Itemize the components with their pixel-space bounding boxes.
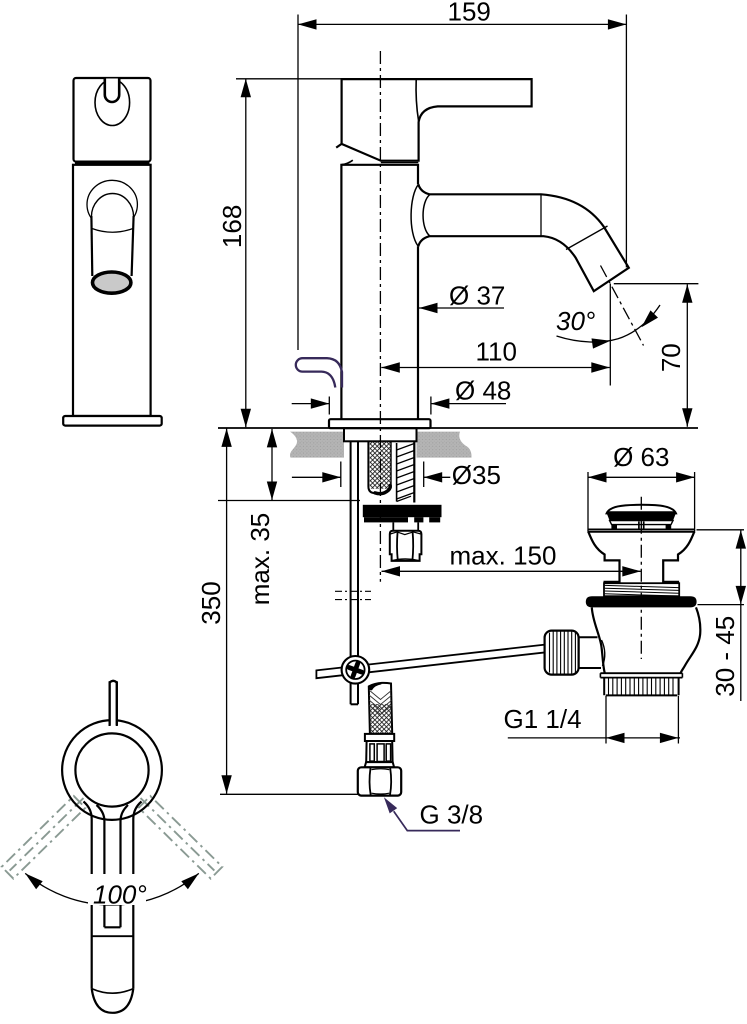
svg-text:Ø 63: Ø 63 [613,442,669,472]
svg-text:max. 35: max. 35 [245,513,275,606]
svg-text:30°: 30° [556,306,595,336]
svg-text:max. 150: max. 150 [450,541,557,571]
svg-text:70: 70 [656,343,686,372]
svg-text:168: 168 [217,205,247,248]
svg-text:350: 350 [196,581,226,624]
svg-text:Ø 37: Ø 37 [449,281,505,311]
svg-text:G1 1/4: G1 1/4 [504,704,582,734]
svg-text:110: 110 [476,336,517,366]
svg-text:159: 159 [448,0,491,26]
svg-text:30 - 45: 30 - 45 [710,616,740,697]
svg-text:G 3/8: G 3/8 [420,800,484,830]
svg-text:Ø 48: Ø 48 [455,375,511,405]
svg-text:100°: 100° [93,880,147,910]
svg-text:Ø35: Ø35 [452,460,501,490]
